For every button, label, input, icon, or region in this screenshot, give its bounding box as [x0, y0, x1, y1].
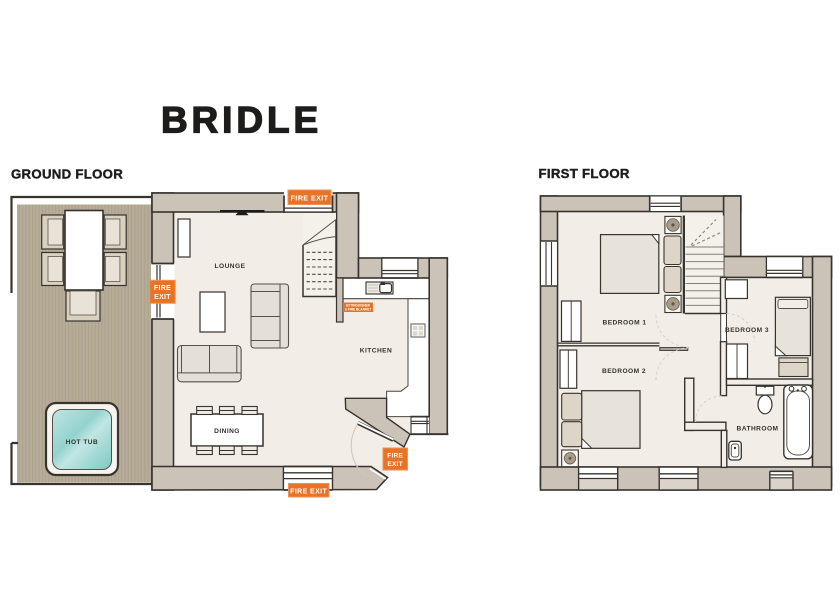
- svg-text:GROUND FLOOR: GROUND FLOOR: [11, 166, 123, 181]
- svg-text:BEDROOM 2: BEDROOM 2: [602, 368, 646, 375]
- svg-text:FIRST FLOOR: FIRST FLOOR: [539, 166, 630, 181]
- svg-text:LOUNGE: LOUNGE: [215, 263, 246, 270]
- svg-text:& FIRE BLANKET: & FIRE BLANKET: [345, 308, 372, 312]
- svg-text:HOT TUB: HOT TUB: [66, 439, 98, 446]
- svg-text:BEDROOM 1: BEDROOM 1: [603, 320, 647, 327]
- svg-text:FIRE: FIRE: [387, 453, 403, 460]
- svg-text:FIRE: FIRE: [154, 285, 171, 292]
- svg-text:DINING: DINING: [214, 428, 240, 435]
- svg-text:EXIT: EXIT: [154, 294, 171, 301]
- svg-text:EXIT: EXIT: [387, 461, 403, 468]
- svg-text:BRIDLE: BRIDLE: [161, 100, 322, 141]
- svg-text:FIRE EXIT: FIRE EXIT: [291, 194, 329, 203]
- svg-text:BATHROOM: BATHROOM: [737, 426, 779, 433]
- svg-text:BEDROOM 3: BEDROOM 3: [725, 327, 769, 334]
- svg-text:FIRE EXIT: FIRE EXIT: [290, 488, 327, 495]
- svg-text:KITCHEN: KITCHEN: [360, 347, 392, 354]
